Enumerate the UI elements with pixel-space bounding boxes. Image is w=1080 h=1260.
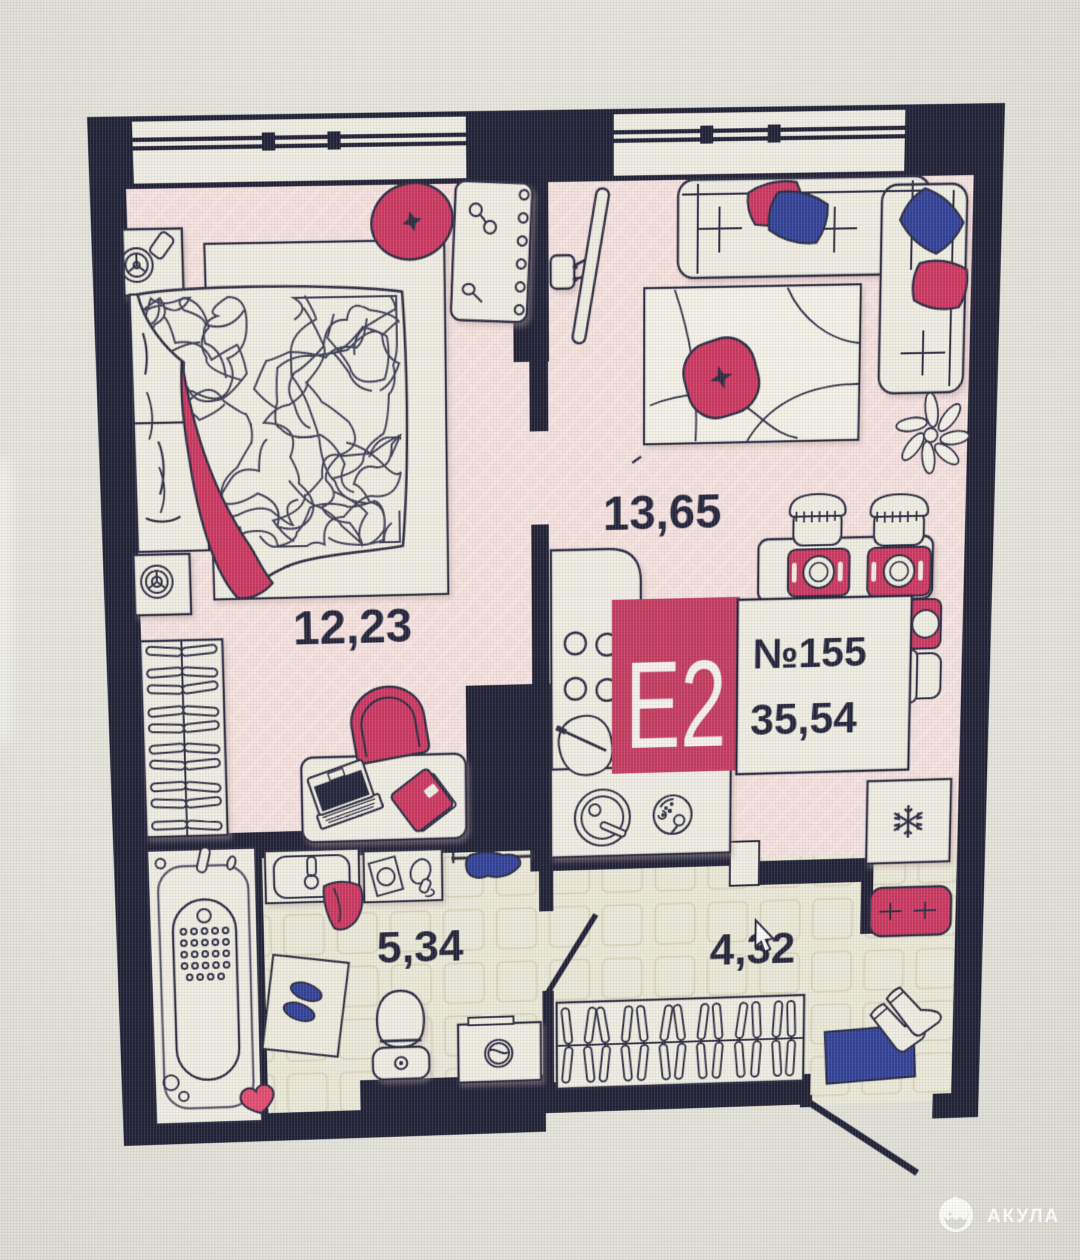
svg-text:12,23: 12,23 xyxy=(292,597,412,655)
svg-text:35,54: 35,54 xyxy=(750,693,858,745)
svg-text:13,65: 13,65 xyxy=(603,482,722,540)
svg-text:4,32: 4,32 xyxy=(710,923,796,975)
svg-text:5,34: 5,34 xyxy=(376,921,464,973)
svg-text:№155: №155 xyxy=(752,627,867,678)
svg-text:Е2: Е2 xyxy=(625,635,727,775)
